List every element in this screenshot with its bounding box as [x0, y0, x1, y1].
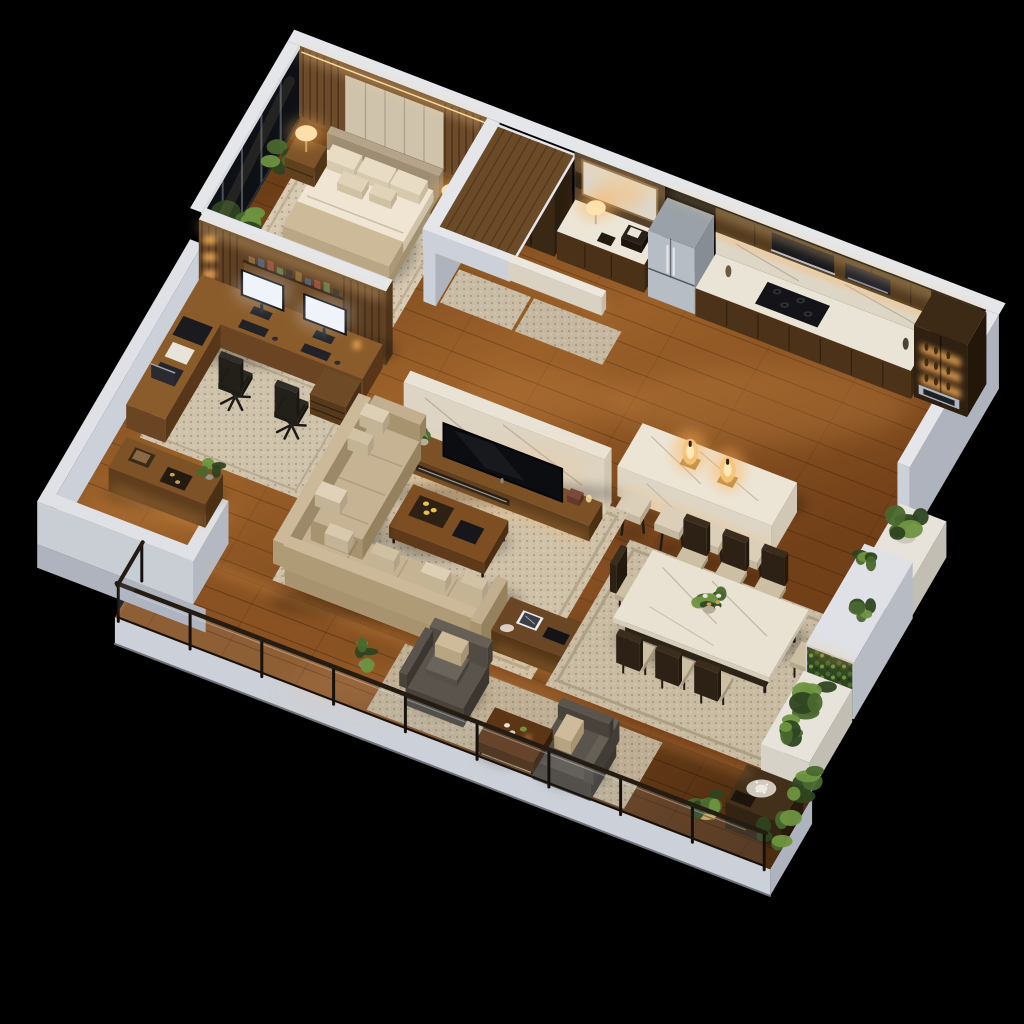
isometric-apartment-scene [0, 0, 1024, 1024]
floorplan-render [0, 0, 1024, 1024]
display-cabinet [914, 292, 986, 417]
